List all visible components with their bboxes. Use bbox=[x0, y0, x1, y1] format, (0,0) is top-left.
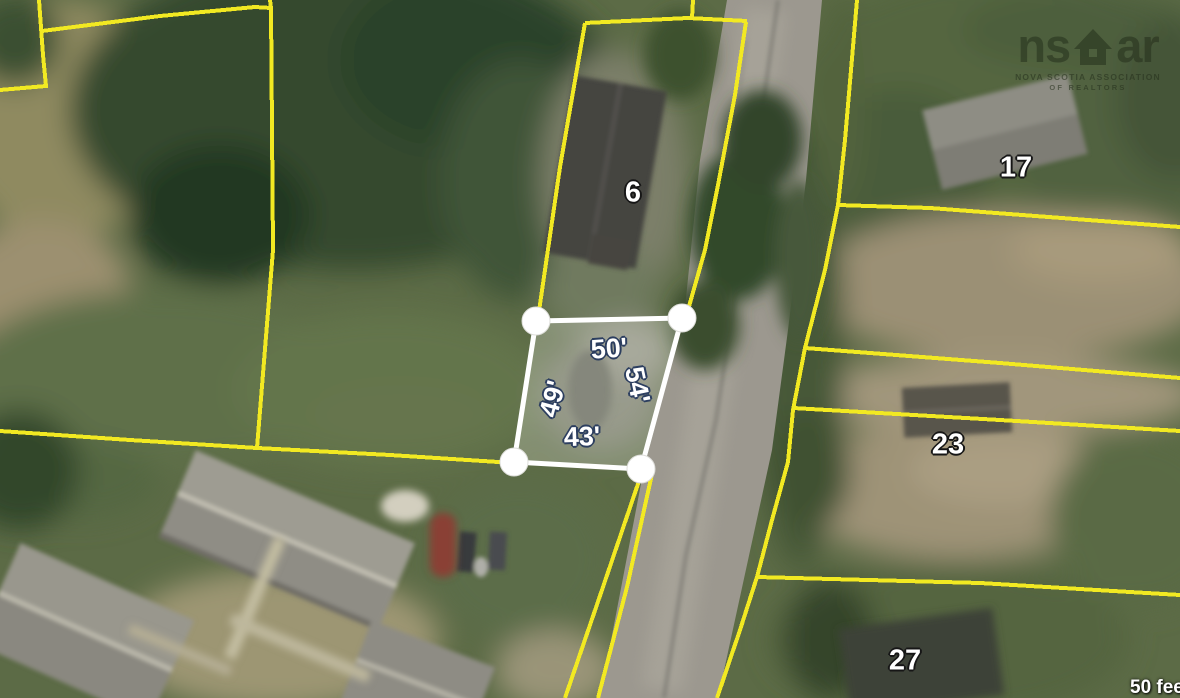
parcel-line bbox=[692, 0, 693, 18]
map-scale-label: 50 feet bbox=[1130, 677, 1180, 698]
house-number-23: 23 bbox=[932, 431, 964, 460]
house-number-17: 17 bbox=[1000, 154, 1032, 183]
car bbox=[474, 557, 488, 577]
lot-corner-marker bbox=[668, 304, 696, 332]
house-number-6: 6 bbox=[625, 179, 641, 208]
nsar-logo-ar: ar bbox=[1116, 22, 1158, 69]
nsar-logo-ns: ns bbox=[1017, 22, 1070, 69]
car bbox=[456, 531, 476, 572]
lot-corner-marker bbox=[522, 307, 550, 335]
nsar-logo: ns ar bbox=[1002, 22, 1174, 69]
aerial-parcel-map: 6 17 23 27 50' 54' 49' 43' 50 feet ns ar… bbox=[0, 0, 1180, 698]
nsar-watermark-line2: OF REALTORS bbox=[1002, 83, 1174, 92]
red-tree bbox=[430, 513, 456, 577]
nsar-watermark: ns ar NOVA SCOTIA ASSOCIATION OF REALTOR… bbox=[1002, 22, 1174, 92]
lot-corner-marker bbox=[627, 455, 655, 483]
car bbox=[488, 532, 507, 571]
lot-dimension-bottom: 43' bbox=[563, 423, 600, 451]
house-number-27: 27 bbox=[889, 647, 921, 676]
nsar-watermark-line1: NOVA SCOTIA ASSOCIATION bbox=[1002, 72, 1174, 82]
lot-dimension-right: 54' bbox=[620, 364, 654, 405]
house-icon bbox=[1073, 28, 1113, 66]
path bbox=[381, 490, 429, 522]
lot-corner-marker bbox=[500, 448, 528, 476]
lot-dimension-top: 50' bbox=[590, 334, 628, 363]
